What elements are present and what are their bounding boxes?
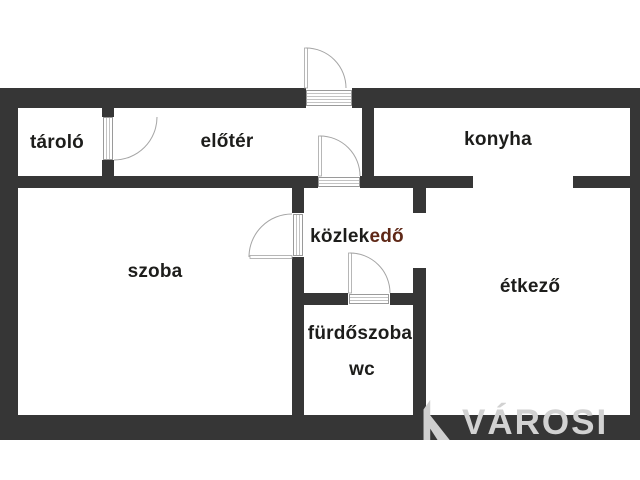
wall-szoba-divider-top bbox=[292, 188, 304, 213]
door-tarolo-arc bbox=[114, 117, 157, 160]
door-szoba-arc bbox=[249, 214, 292, 257]
door-entrance-leaf bbox=[305, 48, 308, 88]
door-kozlekedo-threshold bbox=[318, 177, 360, 187]
room-label-kozlekedo-accent: edő bbox=[369, 226, 403, 247]
wall-eloter-konyha-divider bbox=[362, 108, 374, 176]
wall-furdoszoba-top-right bbox=[390, 293, 415, 305]
varosi-logo-icon bbox=[416, 398, 454, 440]
wall-furdoszoba-top-left bbox=[292, 293, 348, 305]
door-kozlekedo-leaf bbox=[319, 136, 322, 176]
door-entrance-arc bbox=[306, 48, 346, 88]
wall-tarolo-divider-bottom bbox=[102, 160, 114, 176]
door-furdoszoba-arc bbox=[350, 253, 390, 293]
wall-szoba-divider-bottom bbox=[292, 257, 304, 415]
wall-left-exterior bbox=[0, 88, 18, 440]
wall-etkezo-left-top bbox=[413, 188, 426, 213]
room-label-tarolo: tároló bbox=[30, 132, 84, 154]
watermark: VÁROSI bbox=[416, 396, 640, 440]
wall-right-exterior bbox=[630, 88, 640, 440]
room-label-kozlekedo-black: közlek bbox=[310, 226, 369, 247]
wall-tarolo-divider-top bbox=[102, 108, 114, 117]
room-label-etkezo: étkező bbox=[500, 276, 560, 298]
door-furdoszoba-leaf bbox=[349, 253, 352, 293]
wall-etkezo-left-bottom bbox=[413, 268, 426, 415]
wall-konyha-bottom-right bbox=[573, 176, 630, 188]
room-label-kozlekedo: közlekedő bbox=[310, 226, 404, 248]
room-label-szoba: szoba bbox=[128, 261, 183, 283]
room-label-eloter: előtér bbox=[201, 131, 254, 153]
watermark-text: VÁROSI bbox=[454, 396, 608, 440]
door-szoba-threshold bbox=[293, 214, 303, 256]
wall-konyha-bottom-left bbox=[360, 176, 473, 188]
door-entrance-threshold bbox=[306, 90, 352, 106]
door-furdoszoba-threshold bbox=[349, 294, 389, 304]
door-kozlekedo-arc bbox=[320, 136, 360, 176]
room-label-konyha: konyha bbox=[464, 129, 532, 151]
room-label-wc: wc bbox=[349, 359, 375, 381]
room-label-furdoszoba: fürdőszoba bbox=[308, 323, 412, 345]
wall-szoba-top-segment bbox=[18, 176, 318, 188]
wall-top-left-segment bbox=[0, 88, 306, 108]
wall-top-right-segment bbox=[352, 88, 640, 108]
floorplan-canvas: tároló előtér konyha szoba közlekedő étk… bbox=[0, 0, 640, 480]
door-szoba-leaf bbox=[250, 256, 292, 259]
door-tarolo-threshold bbox=[103, 117, 113, 160]
